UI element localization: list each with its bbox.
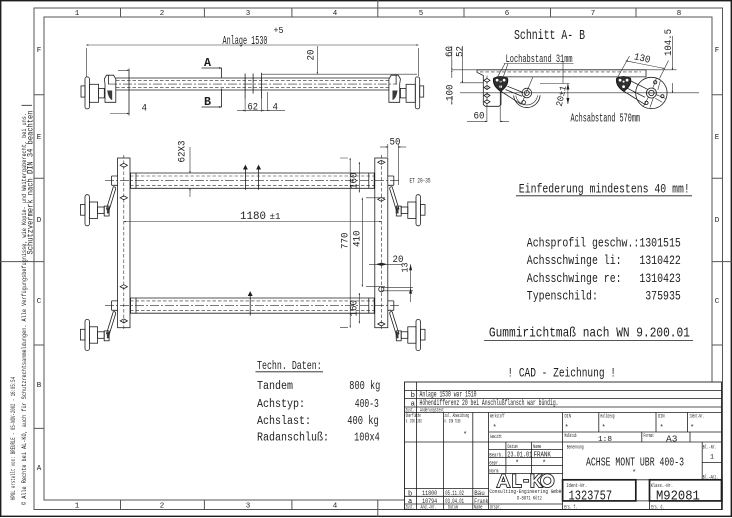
svg-text:Ers. d.: Ers. d. <box>651 504 664 511</box>
svg-text:400-3: 400-3 <box>355 398 379 411</box>
svg-text:C: C <box>37 298 42 306</box>
svg-text:2: 2 <box>160 503 165 511</box>
svg-text:Achsschwinge li: 1310422: Achsschwinge li: 1310422 <box>527 254 681 268</box>
svg-text:+5: +5 <box>274 26 284 36</box>
svg-text:62: 62 <box>248 103 259 114</box>
svg-text:HPGL erstellt von: BREURLE - 0: HPGL erstellt von: BREURLE - 05-NOV-2002… <box>10 377 17 500</box>
svg-text:400 kg: 400 kg <box>347 415 379 428</box>
svg-text:104.5: 104.5 <box>664 29 675 56</box>
svg-text:8: 8 <box>677 10 682 18</box>
svg-text:1: 1 <box>710 454 714 462</box>
svg-text:D: D <box>37 217 42 225</box>
svg-text:FRANK: FRANK <box>534 452 552 460</box>
svg-text:3: 3 <box>246 10 251 18</box>
svg-text:Maßstab: Maßstab <box>565 432 577 439</box>
svg-text:*: * <box>463 432 467 440</box>
svg-text:100: 100 <box>446 85 457 102</box>
svg-text:Einfederung mindestens 40 mm!: Einfederung mindestens 40 mm! <box>519 182 690 197</box>
svg-text:DIN: DIN <box>565 413 572 420</box>
svg-text:Bl.-Anz.: Bl.-Anz. <box>703 474 718 481</box>
svg-text:4: 4 <box>273 103 279 114</box>
svg-text:Schnitt A- B: Schnitt A- B <box>514 28 585 44</box>
svg-text:*: * <box>602 425 606 433</box>
svg-text:410: 410 <box>353 231 364 248</box>
svg-text:Ident-Nr.: Ident-Nr. <box>689 413 704 420</box>
svg-text:Datum: Datum <box>448 504 458 511</box>
svg-text:Achslast:: Achslast: <box>257 415 311 428</box>
svg-text:2: 2 <box>160 10 165 18</box>
svg-text:7: 7 <box>591 10 596 18</box>
svg-text:Änd.-Nr.: Änd.-Nr. <box>421 504 437 511</box>
svg-text:Gewicht: Gewicht <box>490 433 502 440</box>
svg-text:Ers. f.: Ers. f. <box>564 504 577 511</box>
svg-text:D: D <box>715 217 720 225</box>
svg-text:DIN: DIN <box>658 413 665 420</box>
svg-text:11800: 11800 <box>422 490 437 497</box>
svg-text:*: * <box>542 460 546 468</box>
svg-text:Ident-Nr.: Ident-Nr. <box>566 482 587 489</box>
svg-text:n. DIN 7168: n. DIN 7168 <box>445 418 461 425</box>
svg-text:Format: Format <box>644 432 655 439</box>
svg-text:Achsprofil geschw.:1301515: Achsprofil geschw.:1301515 <box>527 236 681 250</box>
svg-text:ACHSE MONT UBR 400-3: ACHSE MONT UBR 400-3 <box>586 455 684 469</box>
svg-text:100x4: 100x4 <box>354 431 380 444</box>
svg-text:n. DIN 1302: n. DIN 1302 <box>406 418 422 425</box>
svg-text:B: B <box>37 382 42 390</box>
svg-text:50: 50 <box>390 138 401 149</box>
svg-text:Achstyp:: Achstyp: <box>257 398 305 411</box>
svg-text:Achsabstand 570mm: Achsabstand 570mm <box>571 113 641 126</box>
svg-text:b: b <box>411 392 416 400</box>
svg-text:*: * <box>493 425 497 433</box>
svg-text:Radanschluß:: Radanschluß: <box>257 431 329 444</box>
svg-text:Halbzeug: Halbzeug <box>601 413 615 420</box>
svg-text:160: 160 <box>349 173 360 190</box>
svg-text:Name: Name <box>533 443 541 450</box>
svg-text:E: E <box>715 134 720 142</box>
svg-text:Änderungstext: Änderungstext <box>420 407 444 414</box>
svg-text:E: E <box>37 134 42 142</box>
svg-text:A3: A3 <box>666 433 678 444</box>
svg-text:Gummirichtmaß nach WN 9.200.01: Gummirichtmaß nach WN 9.200.01 <box>489 326 690 342</box>
svg-text:*: * <box>690 425 694 433</box>
svg-text:Anlage 1530: Anlage 1530 <box>223 34 268 48</box>
svg-text:Bäu: Bäu <box>474 490 485 497</box>
svg-text:Gepr.: Gepr. <box>489 459 500 466</box>
svg-text:6: 6 <box>505 10 510 18</box>
svg-text:Achsschwinge re: 1310423: Achsschwinge re: 1310423 <box>527 272 681 286</box>
svg-text:Datum: Datum <box>508 443 518 450</box>
svg-text:800 kg: 800 kg <box>349 380 380 393</box>
svg-text:62X3: 62X3 <box>178 141 189 163</box>
svg-text:! CAD - Zeichnung !: ! CAD - Zeichnung ! <box>507 365 616 380</box>
svg-text:Urspr.: Urspr. <box>490 504 502 511</box>
svg-text:3: 3 <box>246 503 251 511</box>
svg-text:*: * <box>660 425 664 433</box>
svg-text:5: 5 <box>419 10 424 18</box>
svg-text:13: 13 <box>401 263 411 273</box>
svg-text:Zust.: Zust. <box>406 504 415 511</box>
svg-text:Bearb.: Bearb. <box>489 451 503 458</box>
svg-text:Klass.-Nr.: Klass.-Nr. <box>651 482 673 489</box>
svg-text:1323757: 1323757 <box>569 489 613 504</box>
svg-text:52: 52 <box>455 46 466 57</box>
svg-text:60: 60 <box>474 112 485 123</box>
svg-text:770: 770 <box>341 233 352 250</box>
svg-text:4: 4 <box>142 104 148 115</box>
svg-text:*: * <box>515 460 519 468</box>
svg-text:Name: Name <box>474 504 483 511</box>
svg-text:60: 60 <box>445 46 456 57</box>
svg-text:160: 160 <box>349 300 360 317</box>
svg-text:1:8: 1:8 <box>598 436 612 444</box>
svg-text:23.01.01: 23.01.01 <box>507 452 532 460</box>
svg-text:1: 1 <box>75 503 80 511</box>
svg-text:ET 20-35: ET 20-35 <box>410 178 431 185</box>
svg-text:A: A <box>37 465 42 473</box>
svg-text:20: 20 <box>307 50 318 61</box>
svg-text:Bl.-Nr.: Bl.-Nr. <box>703 443 717 450</box>
svg-text:C: C <box>715 298 720 306</box>
svg-text:Tandem: Tandem <box>257 380 293 393</box>
svg-text:Werkstoff: Werkstoff <box>490 413 505 420</box>
svg-text:4: 4 <box>333 10 338 18</box>
svg-text:1180: 1180 <box>240 211 266 223</box>
svg-text:±1: ±1 <box>270 212 281 222</box>
svg-text:F: F <box>715 47 720 55</box>
svg-text:M92081: M92081 <box>656 489 700 504</box>
svg-text:D-8871 Kötz: D-8871 Kötz <box>517 494 542 501</box>
svg-text:Typenschild: 375935: Typenschild: 375935 <box>527 290 681 304</box>
svg-text:© Alle Rechte bei AL-KO, auch: © Alle Rechte bei AL-KO, auch für Schutz… <box>20 113 29 505</box>
svg-text:Norm: Norm <box>489 467 498 474</box>
svg-text:4: 4 <box>333 503 338 511</box>
svg-text:05.11.02: 05.11.02 <box>445 490 464 497</box>
svg-text:Techn. Daten:: Techn. Daten: <box>257 359 322 373</box>
svg-text:Benennung: Benennung <box>567 444 584 451</box>
svg-text:F: F <box>37 47 42 55</box>
svg-text:1: 1 <box>75 10 80 18</box>
svg-text:*: * <box>632 470 636 478</box>
